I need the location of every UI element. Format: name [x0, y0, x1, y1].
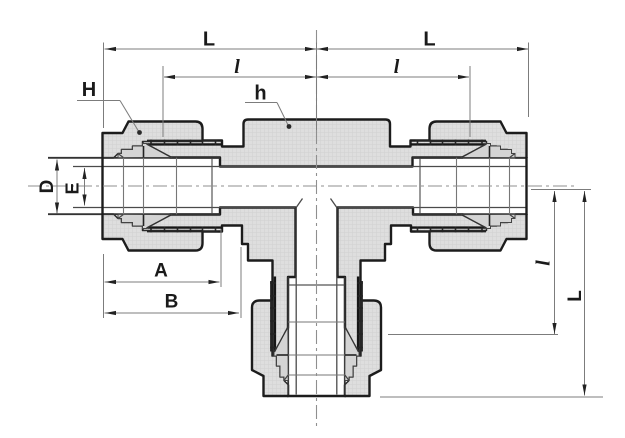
svg-text:E: E — [63, 182, 83, 194]
svg-text:L: L — [423, 29, 435, 51]
svg-text:l: l — [234, 56, 240, 78]
svg-text:B: B — [165, 292, 179, 313]
svg-text:l: l — [394, 56, 400, 78]
svg-text:L: L — [203, 29, 215, 51]
svg-text:h: h — [254, 83, 266, 105]
svg-text:A: A — [154, 261, 168, 282]
svg-text:D: D — [37, 180, 58, 194]
svg-text:l: l — [533, 260, 555, 266]
svg-text:L: L — [565, 290, 586, 302]
svg-text:H: H — [82, 79, 96, 101]
